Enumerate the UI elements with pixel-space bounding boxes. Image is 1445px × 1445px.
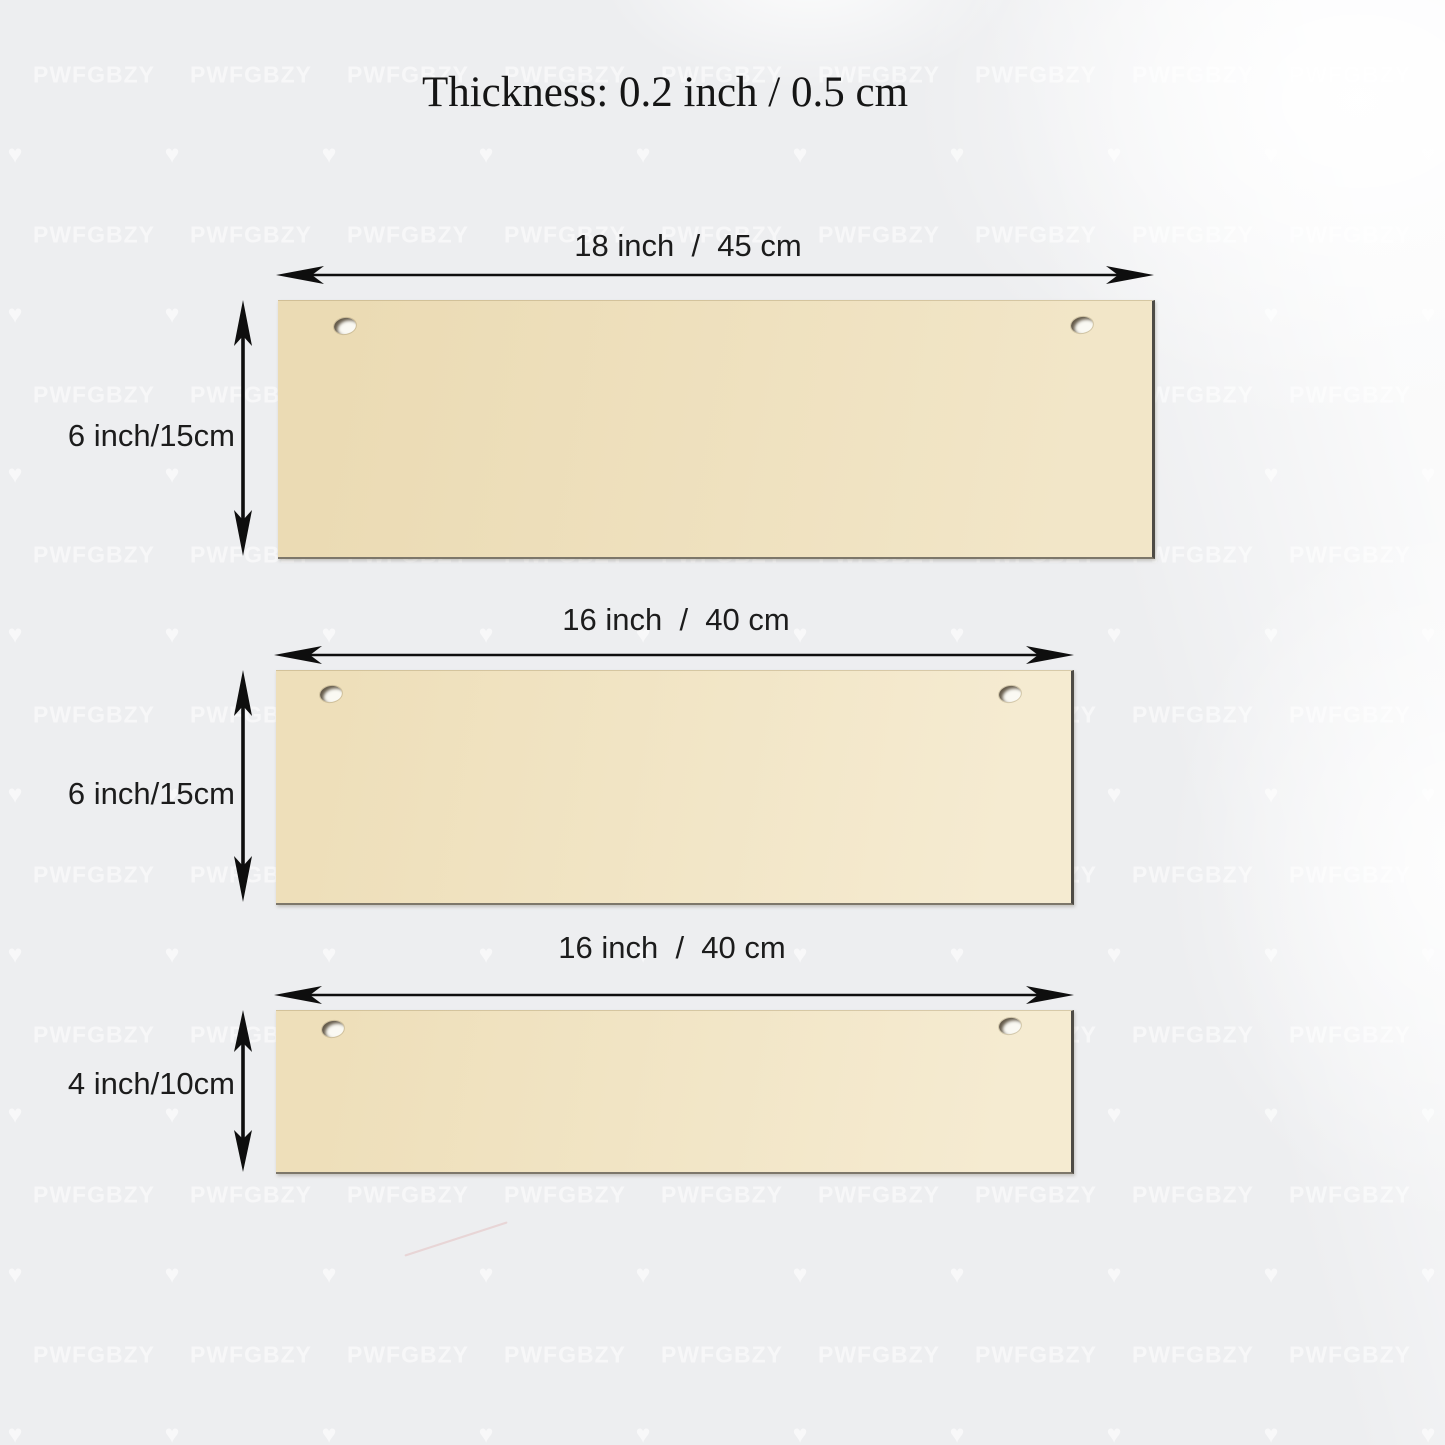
hanging-hole-icon bbox=[998, 684, 1022, 704]
board1-width-label: 18 inch / 45 cm bbox=[574, 228, 801, 264]
watermark-heart-icon: ♥ bbox=[322, 1261, 337, 1290]
watermark-text: PWFGBZY bbox=[975, 1342, 1097, 1369]
watermark-heart-icon: ♥ bbox=[8, 301, 23, 330]
watermark-text: PWFGBZY bbox=[190, 1182, 312, 1209]
watermark-heart-icon: ♥ bbox=[1107, 781, 1122, 810]
watermark-heart-icon: ♥ bbox=[950, 141, 965, 170]
page-title: Thickness: 0.2 inch / 0.5 cm bbox=[422, 68, 908, 117]
watermark-text: PWFGBZY bbox=[33, 862, 155, 889]
watermark-heart-icon: ♥ bbox=[793, 1421, 808, 1445]
watermark-heart-icon: ♥ bbox=[1107, 941, 1122, 970]
watermark-heart-icon: ♥ bbox=[1264, 461, 1279, 490]
watermark-text: PWFGBZY bbox=[1289, 862, 1411, 889]
watermark-heart-icon: ♥ bbox=[1421, 781, 1436, 810]
watermark-heart-icon: ♥ bbox=[8, 1101, 23, 1130]
watermark-heart-icon: ♥ bbox=[1107, 1261, 1122, 1290]
watermark-heart-icon: ♥ bbox=[1421, 1421, 1436, 1445]
watermark-heart-icon: ♥ bbox=[165, 461, 180, 490]
watermark-heart-icon: ♥ bbox=[1421, 461, 1436, 490]
watermark-text: PWFGBZY bbox=[190, 222, 312, 249]
watermark-heart-icon: ♥ bbox=[1264, 941, 1279, 970]
watermark-heart-icon: ♥ bbox=[322, 141, 337, 170]
watermark-heart-icon: ♥ bbox=[793, 141, 808, 170]
watermark-heart-icon: ♥ bbox=[1107, 1101, 1122, 1130]
watermark-heart-icon: ♥ bbox=[479, 941, 494, 970]
watermark-heart-icon: ♥ bbox=[322, 1421, 337, 1445]
wood-blank-board-2 bbox=[276, 670, 1074, 905]
watermark-heart-icon: ♥ bbox=[950, 1261, 965, 1290]
watermark-text: PWFGBZY bbox=[1132, 1022, 1254, 1049]
watermark-heart-icon: ♥ bbox=[1264, 1101, 1279, 1130]
backdrop-crease bbox=[404, 1221, 507, 1256]
watermark-heart-icon: ♥ bbox=[1421, 621, 1436, 650]
watermark-heart-icon: ♥ bbox=[793, 1261, 808, 1290]
board3-height-label: 4 inch/10cm bbox=[68, 1066, 235, 1102]
watermark-text: PWFGBZY bbox=[818, 1182, 940, 1209]
watermark-heart-icon: ♥ bbox=[793, 941, 808, 970]
watermark-heart-icon: ♥ bbox=[165, 621, 180, 650]
watermark-heart-icon: ♥ bbox=[636, 141, 651, 170]
watermark-text: PWFGBZY bbox=[1289, 1182, 1411, 1209]
watermark-heart-icon: ♥ bbox=[479, 141, 494, 170]
watermark-text: PWFGBZY bbox=[33, 1182, 155, 1209]
watermark-heart-icon: ♥ bbox=[1421, 1101, 1436, 1130]
board2-width-arrow bbox=[272, 642, 1076, 668]
board3-width-arrow bbox=[272, 982, 1076, 1008]
watermark-text: PWFGBZY bbox=[975, 1182, 1097, 1209]
hanging-hole-icon bbox=[319, 684, 343, 704]
watermark-heart-icon: ♥ bbox=[636, 1421, 651, 1445]
watermark-text: PWFGBZY bbox=[1132, 862, 1254, 889]
watermark-heart-icon: ♥ bbox=[8, 461, 23, 490]
watermark-text: PWFGBZY bbox=[1289, 222, 1411, 249]
watermark-text: PWFGBZY bbox=[33, 62, 155, 89]
watermark-text: PWFGBZY bbox=[975, 222, 1097, 249]
board2-height-label: 6 inch/15cm bbox=[68, 776, 235, 812]
watermark-text: PWFGBZY bbox=[33, 222, 155, 249]
wood-blank-board-3 bbox=[276, 1010, 1074, 1174]
watermark-text: PWFGBZY bbox=[1132, 1182, 1254, 1209]
watermark-text: PWFGBZY bbox=[347, 1182, 469, 1209]
watermark-heart-icon: ♥ bbox=[8, 1421, 23, 1445]
board1-height-label: 6 inch/15cm bbox=[68, 418, 235, 454]
watermark-text: PWFGBZY bbox=[347, 1342, 469, 1369]
watermark-heart-icon: ♥ bbox=[8, 141, 23, 170]
watermark-text: PWFGBZY bbox=[1289, 1022, 1411, 1049]
watermark-text: PWFGBZY bbox=[1132, 1342, 1254, 1369]
watermark-text: PWFGBZY bbox=[818, 222, 940, 249]
watermark-text: PWFGBZY bbox=[190, 1342, 312, 1369]
watermark-heart-icon: ♥ bbox=[950, 941, 965, 970]
product-dimension-diagram: PWFGBZY♥PWFGBZY♥PWFGBZY♥PWFGBZY♥PWFGBZY♥… bbox=[0, 0, 1445, 1445]
watermark-heart-icon: ♥ bbox=[1107, 621, 1122, 650]
watermark-heart-icon: ♥ bbox=[479, 1261, 494, 1290]
watermark-heart-icon: ♥ bbox=[1421, 301, 1436, 330]
watermark-text: PWFGBZY bbox=[1289, 62, 1411, 89]
watermark-text: PWFGBZY bbox=[1289, 1342, 1411, 1369]
watermark-text: PWFGBZY bbox=[1132, 62, 1254, 89]
watermark-heart-icon: ♥ bbox=[165, 1101, 180, 1130]
watermark-heart-icon: ♥ bbox=[479, 1421, 494, 1445]
watermark-heart-icon: ♥ bbox=[1264, 301, 1279, 330]
watermark-text: PWFGBZY bbox=[33, 1342, 155, 1369]
board1-width-arrow bbox=[274, 262, 1156, 288]
watermark-text: PWFGBZY bbox=[1289, 542, 1411, 569]
watermark-heart-icon: ♥ bbox=[1264, 621, 1279, 650]
watermark-heart-icon: ♥ bbox=[1107, 141, 1122, 170]
watermark-heart-icon: ♥ bbox=[636, 1261, 651, 1290]
watermark-text: PWFGBZY bbox=[975, 62, 1097, 89]
watermark-heart-icon: ♥ bbox=[8, 1261, 23, 1290]
watermark-text: PWFGBZY bbox=[818, 1342, 940, 1369]
watermark-heart-icon: ♥ bbox=[950, 1421, 965, 1445]
watermark-text: PWFGBZY bbox=[504, 1182, 626, 1209]
watermark-text: PWFGBZY bbox=[33, 542, 155, 569]
watermark-text: PWFGBZY bbox=[33, 702, 155, 729]
watermark-heart-icon: ♥ bbox=[1421, 1261, 1436, 1290]
watermark-heart-icon: ♥ bbox=[165, 1421, 180, 1445]
watermark-heart-icon: ♥ bbox=[8, 781, 23, 810]
watermark-text: PWFGBZY bbox=[1132, 222, 1254, 249]
watermark-text: PWFGBZY bbox=[661, 1182, 783, 1209]
watermark-text: PWFGBZY bbox=[347, 222, 469, 249]
hanging-hole-icon bbox=[333, 316, 357, 336]
watermark-text: PWFGBZY bbox=[661, 1342, 783, 1369]
board2-width-label: 16 inch / 40 cm bbox=[562, 602, 789, 638]
wood-blank-board-1 bbox=[278, 300, 1155, 559]
hanging-hole-icon bbox=[998, 1016, 1022, 1036]
watermark-heart-icon: ♥ bbox=[1264, 1261, 1279, 1290]
watermark-heart-icon: ♥ bbox=[165, 301, 180, 330]
watermark-heart-icon: ♥ bbox=[1107, 1421, 1122, 1445]
hanging-hole-icon bbox=[321, 1019, 345, 1039]
watermark-heart-icon: ♥ bbox=[165, 941, 180, 970]
watermark-heart-icon: ♥ bbox=[165, 141, 180, 170]
watermark-heart-icon: ♥ bbox=[8, 621, 23, 650]
watermark-text: PWFGBZY bbox=[1289, 702, 1411, 729]
watermark-heart-icon: ♥ bbox=[1264, 141, 1279, 170]
watermark-text: PWFGBZY bbox=[33, 382, 155, 409]
watermark-heart-icon: ♥ bbox=[1264, 1421, 1279, 1445]
hanging-hole-icon bbox=[1070, 315, 1094, 335]
watermark-text: PWFGBZY bbox=[190, 62, 312, 89]
watermark-heart-icon: ♥ bbox=[322, 941, 337, 970]
watermark-text: PWFGBZY bbox=[1132, 702, 1254, 729]
watermark-text: PWFGBZY bbox=[1289, 382, 1411, 409]
watermark-heart-icon: ♥ bbox=[8, 941, 23, 970]
watermark-text: PWFGBZY bbox=[33, 1022, 155, 1049]
watermark-heart-icon: ♥ bbox=[165, 1261, 180, 1290]
watermark-heart-icon: ♥ bbox=[1421, 941, 1436, 970]
watermark-heart-icon: ♥ bbox=[1421, 141, 1436, 170]
board3-width-label: 16 inch / 40 cm bbox=[558, 930, 785, 966]
watermark-heart-icon: ♥ bbox=[1264, 781, 1279, 810]
watermark-text: PWFGBZY bbox=[504, 1342, 626, 1369]
